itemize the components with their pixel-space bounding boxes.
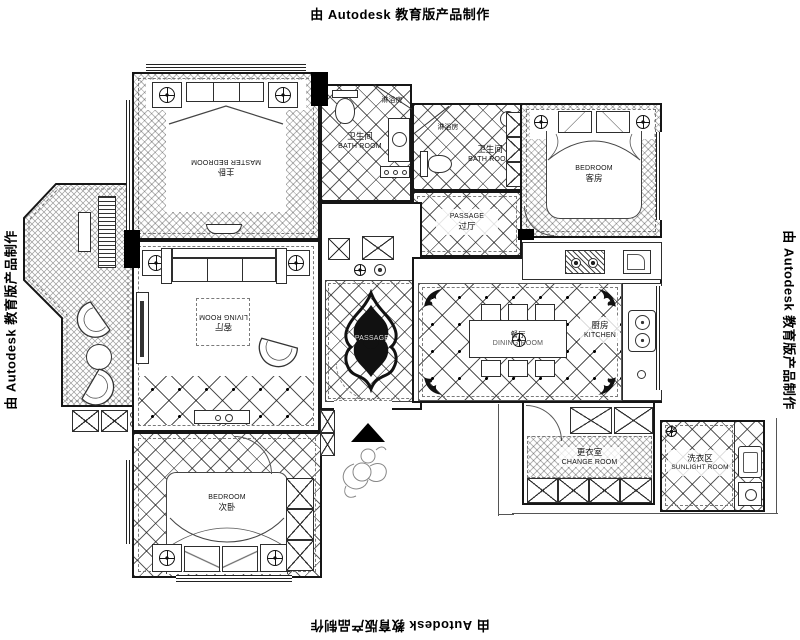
washing-machine	[738, 482, 762, 506]
pillow	[184, 546, 220, 572]
flower-fitting-icon	[374, 264, 386, 276]
boundary-line	[498, 514, 514, 515]
ceiling-light-icon	[354, 264, 366, 276]
dining-chair	[481, 360, 501, 377]
media-console	[194, 410, 250, 424]
figure-sketch	[332, 442, 396, 500]
dining-chair	[508, 304, 528, 321]
burner	[588, 258, 598, 268]
pier-xbox	[320, 410, 335, 433]
room-sunlight-room: 洗衣区 SUNLIGHT ROOM	[660, 420, 765, 512]
corner-flourish	[596, 287, 618, 309]
wardrobe-xbox	[620, 478, 652, 503]
corner-flourish	[596, 375, 618, 397]
ceiling-light-icon	[534, 115, 548, 129]
window-strip	[126, 460, 133, 544]
ceiling-light-icon	[267, 550, 283, 566]
sink-basin	[635, 315, 650, 330]
wardrobe-xbox	[286, 540, 314, 571]
dining-chair	[535, 360, 555, 377]
entry-opening	[334, 400, 392, 410]
floorplan-canvas: 由 Autodesk 教育版产品制作 由 Autodesk 教育版产品制作 由 …	[0, 0, 800, 640]
toilet-tank	[332, 90, 358, 98]
knob	[402, 170, 407, 175]
cabinet-xbox	[72, 410, 99, 432]
wardrobe-xbox	[558, 478, 589, 503]
cabinet-xbox	[101, 410, 128, 432]
room-change-room: 更衣室 CHANGE ROOM	[522, 401, 655, 505]
stove	[565, 250, 605, 274]
ceiling-light-icon	[288, 255, 304, 271]
corner-flourish	[422, 375, 444, 397]
structural-column	[518, 229, 534, 240]
sofa-armrest	[161, 248, 172, 284]
pillow	[222, 546, 258, 572]
room-bathroom-1: 淋浴房 卫生间 BATH ROOM	[320, 84, 412, 202]
boundary-line	[512, 513, 778, 514]
room-passage: PASSAGE 过厅	[412, 191, 522, 257]
sink-icon	[392, 132, 407, 147]
window-strip	[126, 100, 133, 230]
structural-column	[124, 230, 140, 268]
wardrobe-xbox	[286, 509, 314, 540]
cabinet-knobs	[380, 166, 410, 178]
nightstand	[152, 544, 182, 572]
window-strip	[656, 286, 662, 390]
watermark-bottom: 由 Autodesk 教育版产品制作	[310, 617, 489, 636]
room-label-kitchen: 厨房 KITCHEN	[580, 317, 620, 343]
pillow	[558, 111, 592, 133]
room-label-passage: PASSAGE 过厅	[436, 209, 498, 235]
cabinet-xbox	[570, 407, 612, 434]
kitchen-counter-top	[522, 242, 662, 280]
floor-drain	[637, 370, 646, 379]
bed-drape-lines	[546, 132, 642, 162]
boundary-line	[776, 418, 777, 514]
knob	[393, 170, 398, 175]
window-strip	[146, 64, 306, 71]
knob	[215, 415, 221, 421]
knob	[384, 170, 389, 175]
sofa-seat	[172, 258, 276, 282]
room-label-shower-2: 淋浴房	[428, 123, 468, 133]
piano-bench	[78, 212, 91, 252]
bed-drape-lines	[167, 102, 285, 126]
room-label-bathroom-1: 卫生间 BATH ROOM	[330, 130, 390, 152]
laundry-sink	[738, 446, 762, 478]
ceiling-light-icon	[666, 426, 677, 437]
ceiling-light-icon	[159, 87, 175, 103]
sink-basin	[635, 333, 650, 348]
window-strip	[176, 575, 292, 582]
room-master-bedroom: 主卧 MASTER BEDROOM	[132, 72, 320, 240]
washer-door	[745, 489, 757, 501]
room-label-guest-bedroom: BEDROOM 客房	[552, 161, 636, 187]
vanity	[388, 118, 410, 162]
sofa-armrest	[276, 248, 287, 284]
room-label-second-bedroom: BEDROOM 次卧	[184, 490, 270, 516]
cabinet-xbox	[614, 407, 653, 434]
room-living-room: 客厅 LIVING ROOM	[132, 240, 320, 432]
room-second-bedroom: BEDROOM 次卧	[132, 432, 322, 578]
ceiling-light-icon	[275, 87, 291, 103]
toilet-tank	[420, 151, 428, 177]
wardrobe-xbox	[286, 478, 314, 509]
fridge-inner	[627, 254, 645, 270]
console-table	[206, 224, 242, 234]
toilet-icon	[428, 155, 452, 173]
cabinet-xbox	[328, 238, 350, 260]
wardrobe-xbox	[527, 478, 558, 503]
dining-table: 餐厅 DINING ROOM	[469, 320, 567, 358]
toilet-icon	[335, 98, 355, 124]
refrigerator	[623, 250, 651, 274]
ceiling-light-icon	[636, 115, 650, 129]
room-label-living-room: 客厅 LIVING ROOM	[199, 312, 248, 332]
watermark-left: 由 Autodesk 教育版产品制作	[1, 230, 20, 409]
wardrobe-xbox	[589, 478, 620, 503]
room-label-sunlight-room: 洗衣区 SUNLIGHT ROOM	[668, 450, 732, 476]
rug: 客厅 LIVING ROOM	[196, 298, 250, 346]
room-label-change-room: 更衣室 CHANGE ROOM	[559, 447, 621, 467]
room-label-shower-1: 淋浴房	[374, 96, 410, 106]
structural-column	[311, 72, 328, 106]
boundary-line	[498, 404, 499, 516]
sink-basin	[743, 452, 758, 473]
dining-chair	[508, 360, 528, 377]
room-label-dining: 餐厅 DINING ROOM	[493, 330, 543, 349]
pillow	[596, 111, 630, 133]
headboard	[186, 82, 264, 102]
watermark-right: 由 Autodesk 教育版产品制作	[781, 230, 800, 409]
dining-chair	[481, 304, 501, 321]
tv-icon	[140, 301, 144, 357]
change-room-floor: 更衣室 CHANGE ROOM	[527, 436, 652, 478]
kitchen-sink	[628, 310, 656, 352]
counter-divider	[734, 422, 735, 510]
watermark-top: 由 Autodesk 教育版产品制作	[310, 4, 489, 23]
tv-cabinet	[136, 292, 149, 364]
room-label-master-bedroom: 主卧 MASTER BEDROOM	[184, 152, 268, 182]
dining-chair	[535, 304, 555, 321]
fan-chair	[73, 363, 119, 409]
room-corridor: PASSAGE	[320, 202, 422, 410]
sofa-back	[172, 248, 276, 258]
cabinet-xbox	[362, 236, 394, 260]
corner-flourish	[422, 287, 444, 309]
window-strip	[656, 132, 662, 220]
burner	[571, 258, 581, 268]
ceiling-light-icon	[159, 550, 175, 566]
corridor-label: PASSAGE	[342, 333, 402, 345]
north-arrow-icon	[351, 423, 385, 442]
knob	[225, 414, 233, 422]
piano	[98, 196, 116, 268]
